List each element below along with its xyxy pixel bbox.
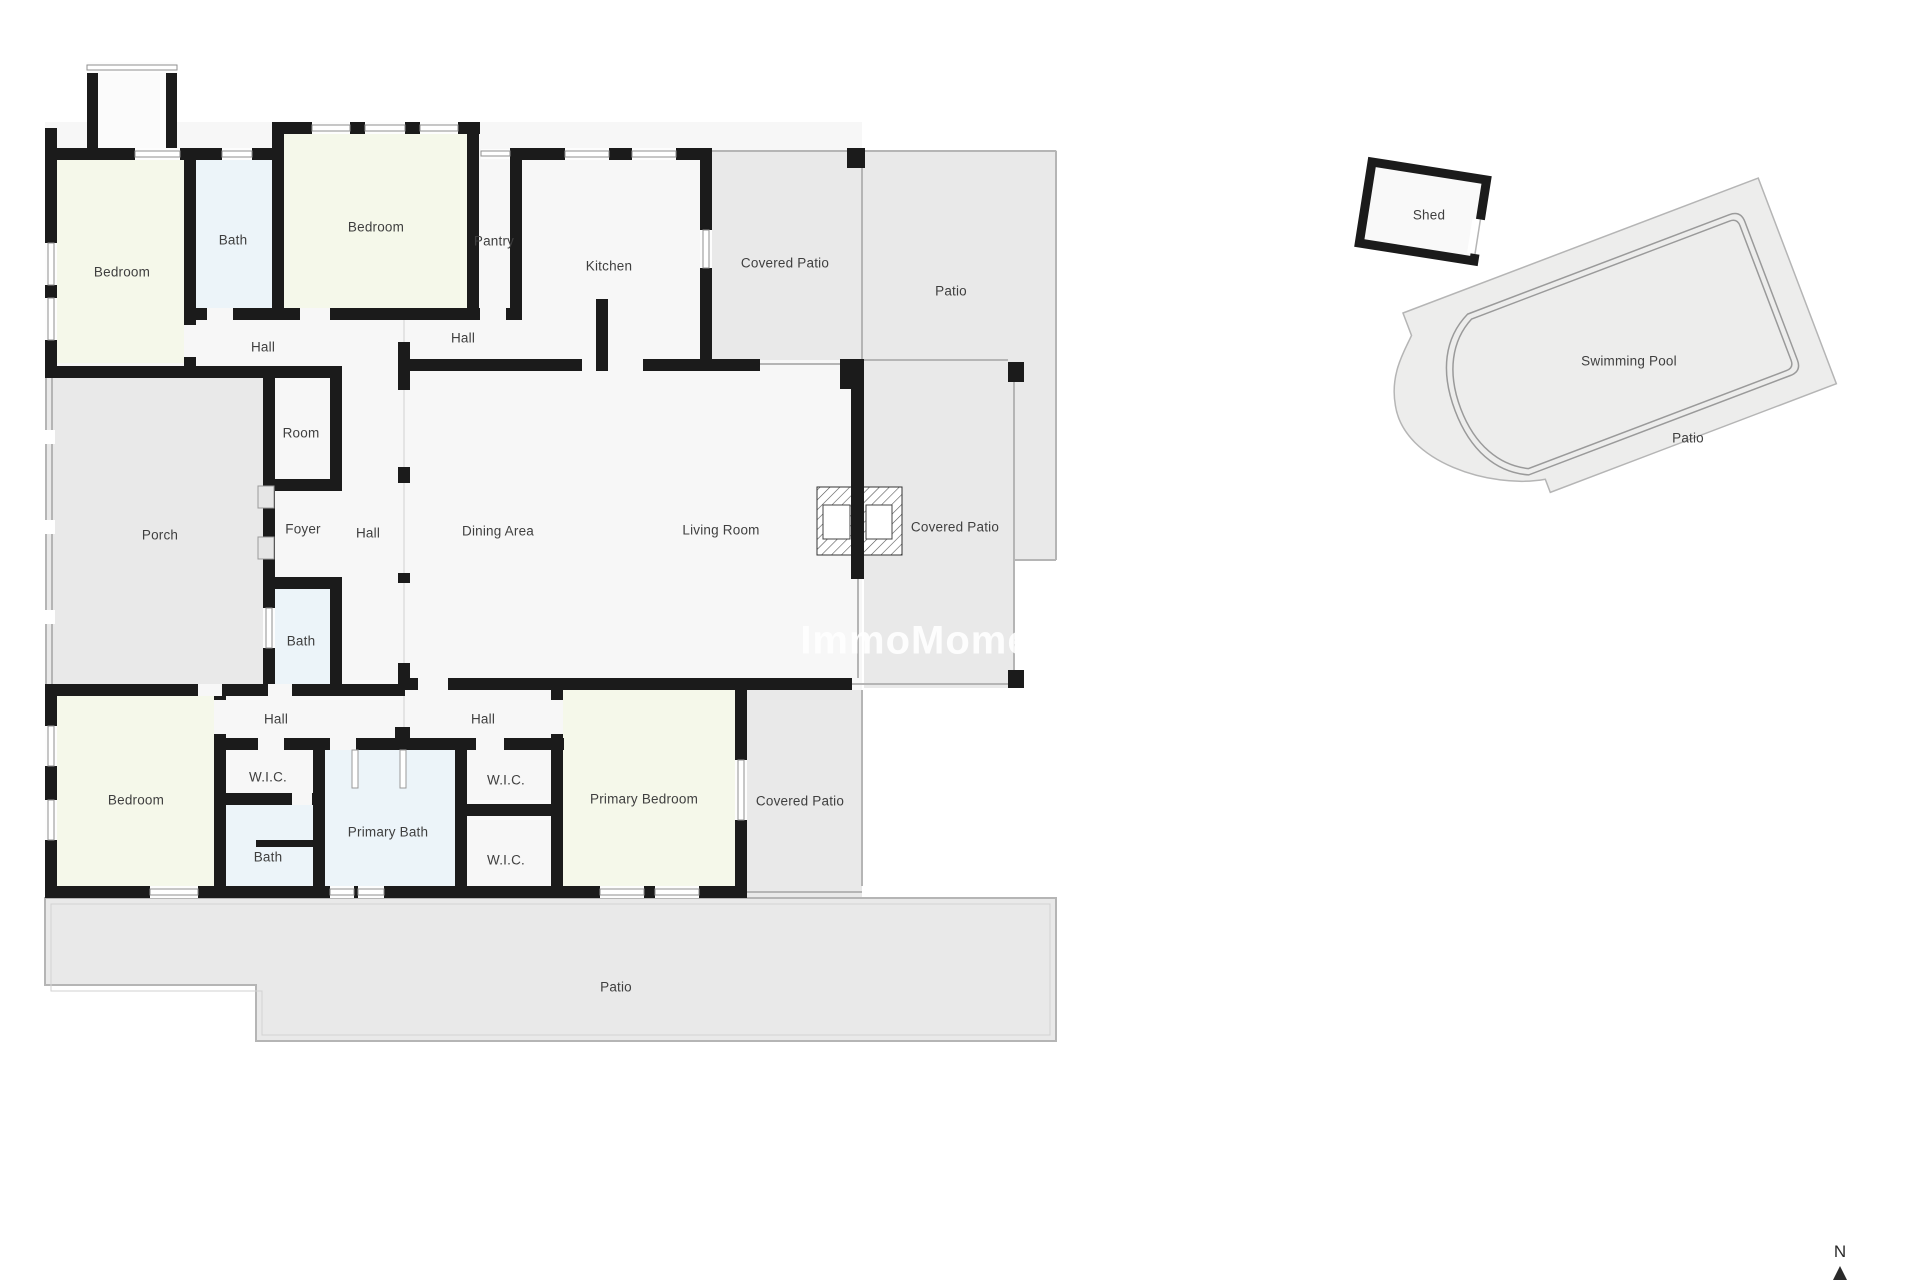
shed-structure — [1359, 162, 1494, 262]
fireplace-icon — [817, 480, 902, 562]
compass-north-label: N — [1834, 1242, 1846, 1262]
floorplan-page: BedroomBathBedroomPantryKitchenCovered P… — [0, 0, 1920, 1280]
watermark-text: ImmoMoment.e — [800, 619, 1105, 664]
north-arrow-icon — [1833, 1266, 1847, 1280]
